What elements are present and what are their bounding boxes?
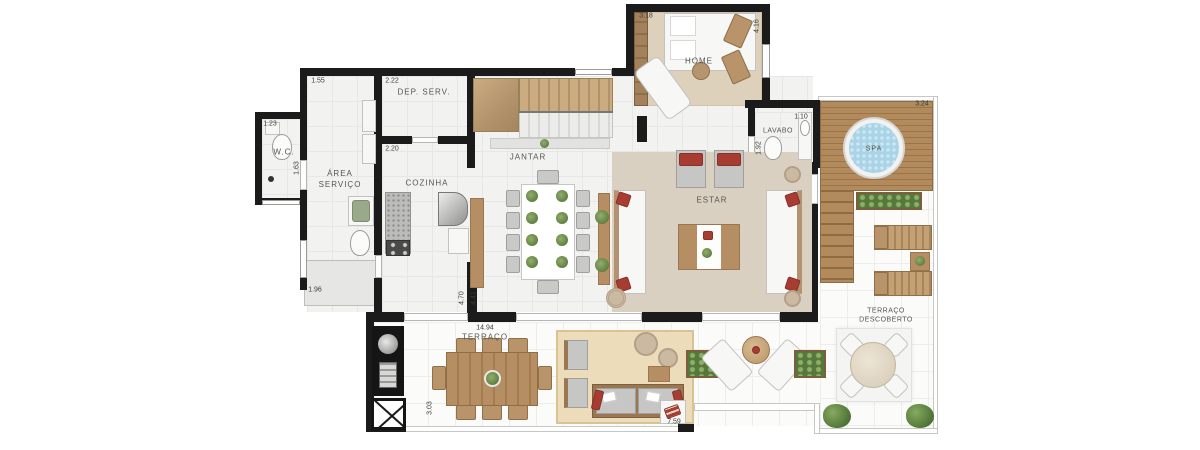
dining-chair [576,212,590,229]
place-setting [526,212,538,224]
wall-bottom [366,312,404,322]
dining-chair [537,280,559,294]
service-vent [300,240,307,278]
pouf [606,288,626,308]
parapet-right [933,96,938,434]
parapet-bottom-mid [404,426,680,432]
coffee-table-plant [702,248,712,258]
dim-spa-deck-width: 3.24 [915,101,929,108]
estar-sliding-door [702,313,780,321]
bbq-sink [378,334,398,354]
terrace-sliding-door [516,313,642,321]
room-label-dep-serv: DEP. SERV. [398,88,451,99]
dining-chair [506,234,520,251]
room-label-home: HOME [685,57,713,68]
dim-wc-depth: 1.63 [294,161,301,175]
room-label-terraco: TERRAÇO [462,333,508,344]
lavabo-sink [800,120,810,136]
wall-bottom [642,312,702,322]
wall-top-main [300,68,575,76]
dining-chair [576,190,590,207]
wall-lavabo-left [748,106,755,136]
stairs-shelf [490,138,610,149]
terrace-window [404,313,468,321]
floor-plan: SPA [0,0,1200,450]
room-label-lavabo: LAVABO [763,126,793,135]
room-label-area-servico: ÁREA SERVIÇO [319,169,362,191]
wall-wc-top [255,112,307,119]
kitchen-island [448,228,469,254]
pouf [784,290,801,307]
wc-door [300,160,307,190]
dim-area-servico-width: 1.55 [311,78,325,85]
wall-bottom [468,312,516,322]
terrace-chair [482,405,502,420]
terrace-chair [538,366,552,390]
dim-lounge-width: 7.59 [667,419,681,426]
parapet-bottom-right [816,428,938,434]
room-label-jantar: JANTAR [510,153,547,164]
lounge-chair [564,340,588,370]
service-cabinet [362,100,376,132]
dining-chair [506,190,520,207]
terrace-round-table [850,342,896,388]
pouf [784,166,801,183]
wall-service-divider [374,278,382,315]
wall-home-lavabo [745,100,820,108]
dim-lavabo-depth: 1.92 [756,141,763,155]
table-centerpiece [484,370,501,387]
dining-chair [537,170,559,184]
wall-left-lower [300,190,307,240]
terrace-plant [906,404,934,428]
home-window [762,44,770,78]
lavabo-toilet [764,136,782,160]
dim-home-depth: 4.16 [754,19,761,33]
wall-estar-stub [637,116,647,142]
terrace-chair [508,405,528,420]
place-setting [556,234,568,246]
place-setting [556,212,568,224]
stairs-turn [473,78,519,132]
spa-label: SPA [866,144,883,153]
dim-jantar-depth-b: 4.41 [471,291,478,305]
dining-chair [576,256,590,273]
dim-dep-serv-width: 2.22 [385,78,399,85]
wall-left-lower [300,278,307,290]
wc-window [262,200,300,205]
dim-jantar-depth-a: 4.70 [459,291,466,305]
service-toilet [350,230,370,256]
shelf-plant [540,139,549,148]
deck-steps [820,191,854,283]
lounge-pouf [634,332,658,356]
lounge-pouf [658,348,678,368]
dining-chair [506,212,520,229]
place-setting [526,256,538,268]
home-wardrobe [634,12,648,106]
room-label-terraco-descoberto: TERRAÇO DESCOBERTO [859,307,913,326]
wall-home-left [626,4,634,76]
table-item [752,346,760,354]
deck-planter [856,192,922,210]
home-sofa-pillow [670,16,696,36]
service-door [375,255,382,278]
sideboard [470,198,484,288]
walkway-planter [794,350,826,378]
wall-home-top [626,4,770,12]
terrace-chair [432,366,446,390]
place-setting [556,256,568,268]
console-plant [595,258,609,272]
lounge-chair [564,378,588,408]
room-label-wc: W.C. [273,148,294,159]
bbq-grill [379,362,397,388]
kitchen-fridge [438,192,468,226]
lounger-backrest [874,226,888,249]
service-cabinet [362,134,376,164]
stairs-railing [519,111,613,113]
dim-terraco-depth: 3.03 [427,401,434,415]
wall-home-right [762,4,770,44]
side-table-plant [915,256,925,266]
console-plant [595,210,609,224]
bbq-firebox [371,398,406,430]
coffee-table-book [703,231,713,240]
wall-wc-left [255,112,262,205]
laundry-tank-basin [352,200,370,222]
dim-home-width: 3.18 [639,13,653,20]
wall-lavabo-right [813,100,820,168]
depserv-door [412,137,438,143]
wall-wc-right [300,119,307,160]
dim-wc-width: 1.23 [263,121,277,128]
top-window [575,69,612,75]
armchair-cushion [679,153,703,166]
service-ledge [304,260,378,306]
dim-terraco-width: 14.94 [476,325,494,332]
place-setting [526,190,538,202]
parapet-walkway-left [814,403,820,434]
stairs-upper-run [519,78,613,112]
wall-depserv-bottom [382,136,412,144]
kitchen-stove [386,240,410,256]
dining-chair [576,234,590,251]
place-setting [526,234,538,246]
room-label-cozinha: COZINHA [406,179,449,190]
terrace-chair [456,405,476,420]
armchair-cushion [717,153,741,166]
dim-cozinha-width: 2.20 [385,146,399,153]
wc-shower-drain [268,176,274,182]
place-setting [556,190,568,202]
dining-chair [506,256,520,273]
room-label-estar: ESTAR [696,196,727,207]
terrace-chair [508,338,528,353]
lounge-ottoman [648,366,670,382]
parapet-walkway [694,403,820,411]
terrace-plant [823,404,851,428]
lounger-backrest [874,272,888,295]
dim-lavabo-width: 1.10 [794,114,808,121]
dim-ledge-width: 1.96 [308,287,322,294]
stairs-lower-run [519,112,613,138]
